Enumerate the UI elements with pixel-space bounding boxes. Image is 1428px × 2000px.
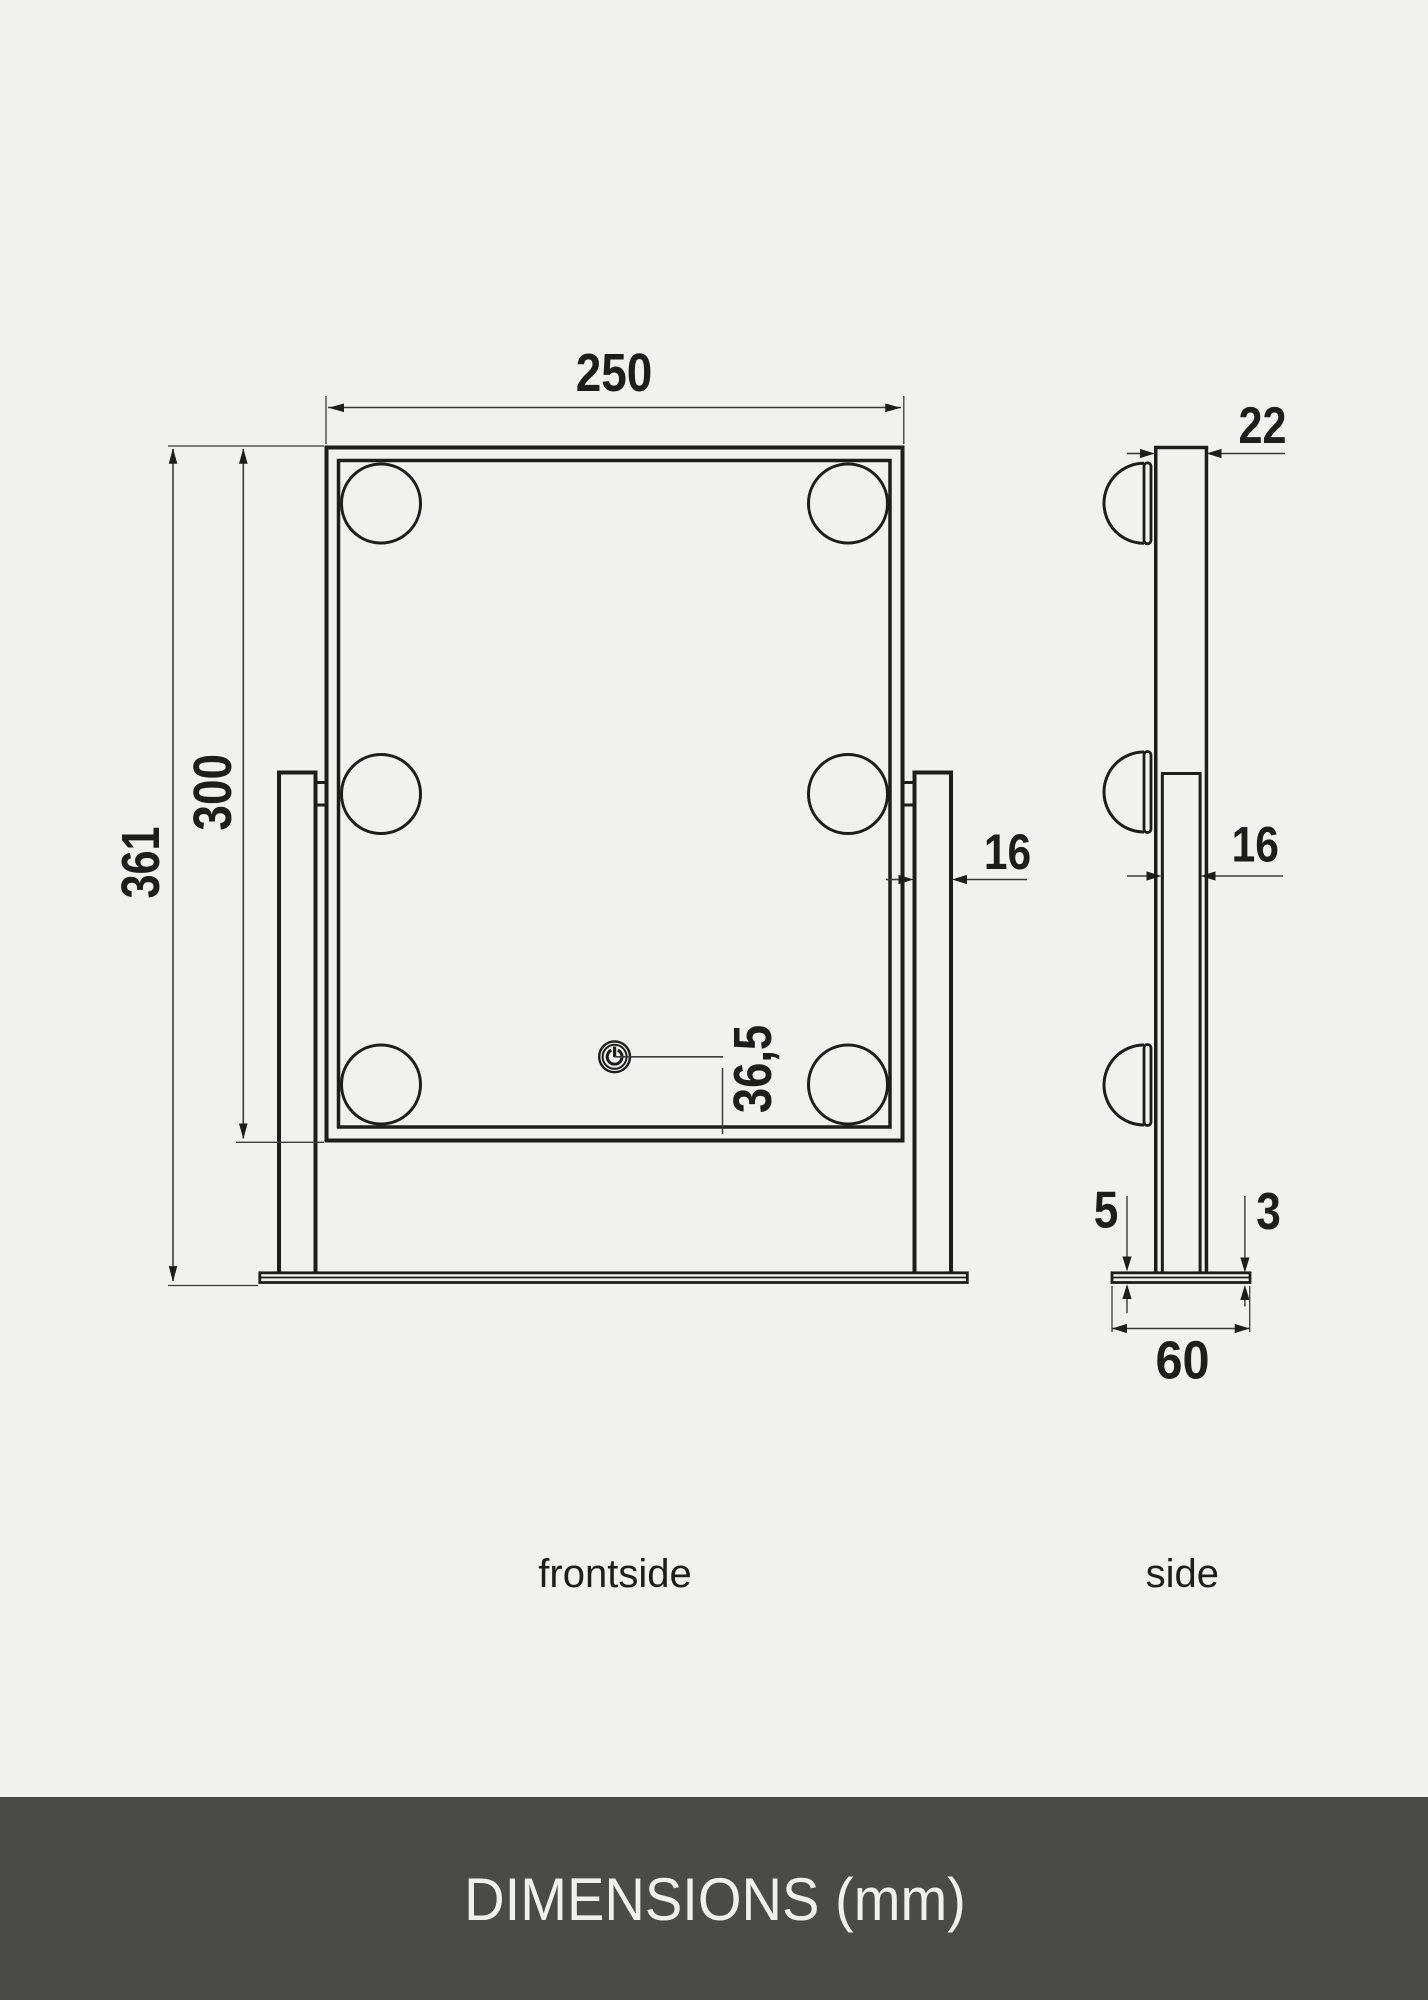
svg-text:frontside: frontside bbox=[538, 1552, 691, 1596]
svg-text:22: 22 bbox=[1239, 397, 1287, 455]
svg-text:16: 16 bbox=[984, 824, 1031, 880]
svg-text:300: 300 bbox=[183, 754, 243, 831]
svg-text:361: 361 bbox=[112, 826, 172, 898]
svg-text:DIMENSIONS (mm): DIMENSIONS (mm) bbox=[464, 1866, 966, 1933]
svg-text:side: side bbox=[1146, 1552, 1219, 1596]
svg-text:250: 250 bbox=[576, 343, 653, 403]
svg-text:16: 16 bbox=[1232, 816, 1279, 872]
svg-text:3: 3 bbox=[1256, 1183, 1281, 1241]
svg-text:36,5: 36,5 bbox=[722, 1025, 783, 1113]
svg-text:60: 60 bbox=[1155, 1329, 1209, 1390]
svg-text:5: 5 bbox=[1094, 1181, 1119, 1239]
